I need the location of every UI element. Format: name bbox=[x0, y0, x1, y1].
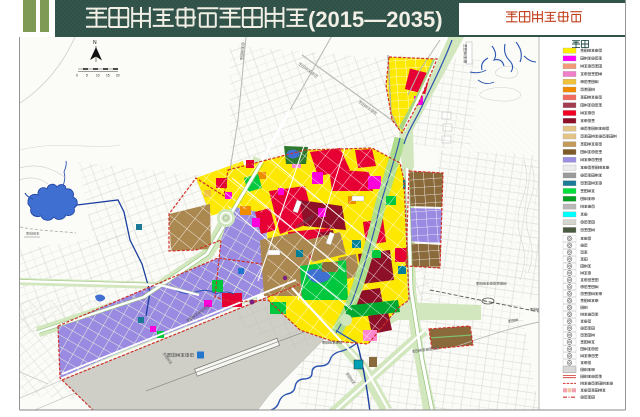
svg-text:N: N bbox=[93, 40, 97, 46]
svg-text:15: 15 bbox=[106, 74, 110, 78]
svg-text:(2015—2035): (2015—2035) bbox=[308, 7, 443, 32]
svg-text:0: 0 bbox=[76, 74, 78, 78]
svg-text:5: 5 bbox=[86, 74, 88, 78]
svg-text:10: 10 bbox=[96, 74, 100, 78]
svg-text:20: 20 bbox=[116, 74, 120, 78]
